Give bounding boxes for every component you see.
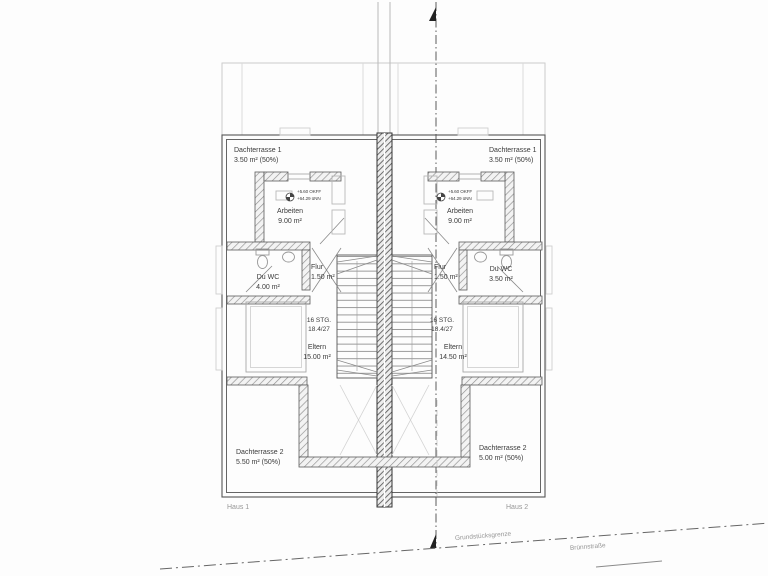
window-left-top <box>288 174 310 179</box>
house-2-label: Haus 2 <box>506 503 528 513</box>
level-text-left-2: +64.29 üNN <box>297 197 321 203</box>
room-label-arbeiten-left: Arbeiten 9.00 m² <box>262 207 318 227</box>
window-right-top <box>459 174 481 179</box>
roof-terrace-1-left-label: Dachterrasse 1 3.50 m² (50%) <box>234 146 281 166</box>
room-label-flur-right: Flur 1.50 m² <box>434 263 458 283</box>
level-marker-icon-left <box>286 193 294 201</box>
room-label-flur-left: Flur 1.50 m² <box>311 263 335 283</box>
roof-terrace-2-right-label: Dachterrasse 2 5.00 m² (50%) <box>479 444 526 464</box>
level-text-left-1: +5.60 OKFF <box>297 190 321 196</box>
party-wall <box>377 133 392 507</box>
room-label-eltern-left: Eltern 15.00 m² <box>294 343 340 363</box>
level-text-right-1: +5.60 OKFF <box>448 190 472 196</box>
section-flag-top <box>429 7 436 21</box>
level-text-right-2: +64.29 üNN <box>448 197 472 203</box>
stairs-label-left: 16 STG. 18.4/27 <box>301 316 337 335</box>
roof-terrace-1-right-label: Dachterrasse 1 3.50 m² (50%) <box>489 146 536 166</box>
roof-terrace-2-left-label: Dachterrasse 2 5.50 m² (50%) <box>236 448 283 468</box>
sink-icon <box>283 252 295 262</box>
house-1-label: Haus 1 <box>227 503 249 513</box>
roof-outline <box>222 2 545 135</box>
stairs-label-right: 16 STG. 18.4/27 <box>424 316 460 335</box>
floor-plan-linework <box>0 0 768 576</box>
room-label-duwc-left: Du WC 4.00 m² <box>240 273 296 293</box>
room-label-arbeiten-right: Arbeiten 9.00 m² <box>432 207 488 227</box>
site-boundary-lines <box>160 523 768 569</box>
wc-fixtures-left <box>256 249 295 269</box>
floor-plan-sheet: Dachterrasse 1 3.50 m² (50%) Dachterrass… <box>0 0 768 576</box>
room-label-duwc-right: Du WC 3.50 m² <box>473 265 529 285</box>
section-flag-bottom <box>430 534 436 548</box>
level-marker-icon-right <box>437 193 445 201</box>
room-label-eltern-right: Eltern 14.50 m² <box>430 343 476 363</box>
stairs-left <box>337 255 377 378</box>
sink-icon <box>475 252 487 262</box>
